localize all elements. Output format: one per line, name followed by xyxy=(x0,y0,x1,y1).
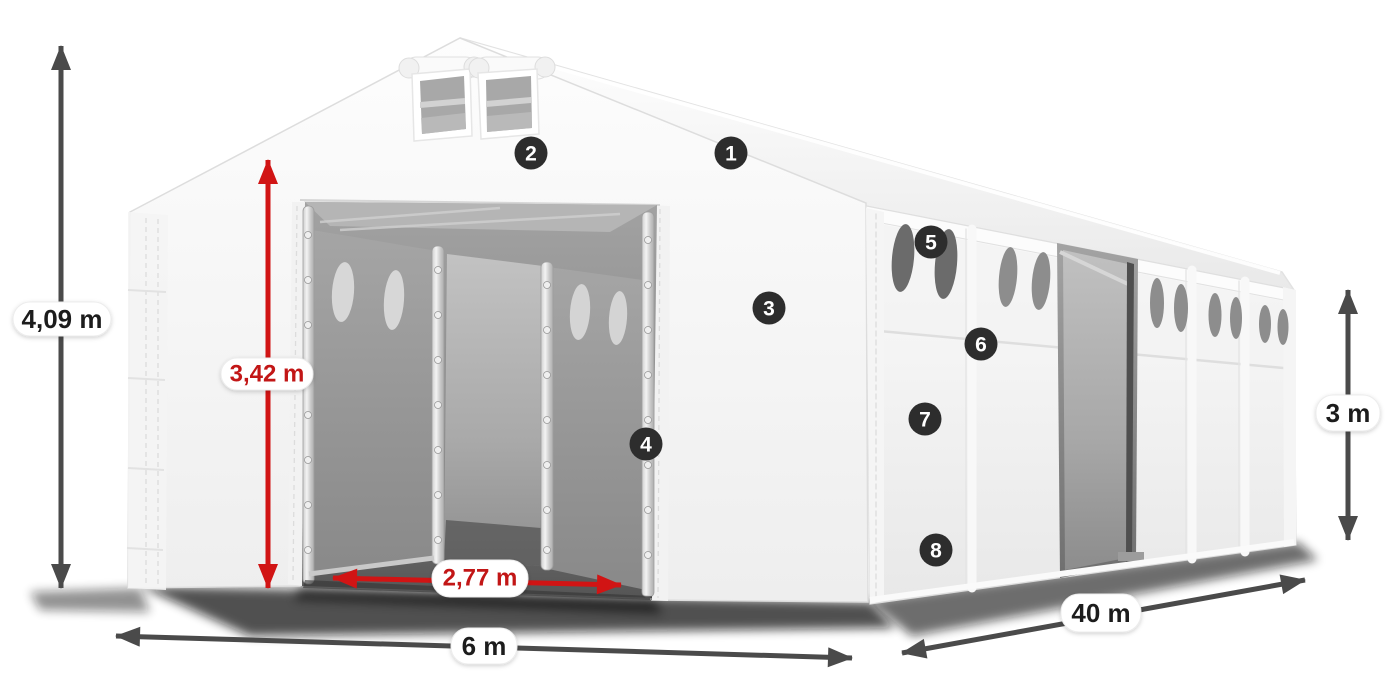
side-height-label: 3 m xyxy=(1316,395,1380,431)
entrance-opening xyxy=(302,202,657,600)
feature-badge-5[interactable]: 5 xyxy=(915,226,948,259)
dimension-side-height: 3 m xyxy=(1316,290,1380,540)
badge-1-number: 1 xyxy=(725,143,737,166)
width-label: 6 m xyxy=(451,628,517,664)
side-window xyxy=(1150,278,1164,328)
side-window xyxy=(1259,305,1271,343)
side-door-base-plate xyxy=(1118,552,1144,561)
feature-badge-1[interactable]: 1 xyxy=(715,137,748,170)
badge-2-number: 2 xyxy=(525,143,537,166)
badge-8-number: 8 xyxy=(930,540,942,563)
side-window xyxy=(1230,297,1242,339)
entrance-height-label: 3,42 m xyxy=(221,358,313,390)
feature-badge-2[interactable]: 2 xyxy=(515,137,548,170)
tent-diagram-canvas: 4,09 m 3,42 m 2,77 m 6 m xyxy=(0,0,1400,700)
feature-badge-8[interactable]: 8 xyxy=(920,534,953,567)
side-window xyxy=(1209,293,1222,337)
total-height-label: 4,09 m xyxy=(13,302,111,336)
side-window xyxy=(1174,284,1188,332)
side-sliding-door-leaf xyxy=(1063,250,1128,570)
badge-7-number: 7 xyxy=(919,409,931,432)
inner-doorway-floor-shadow xyxy=(444,520,541,566)
entrance-width-label: 2,77 m xyxy=(432,560,528,597)
inner-door-right-leaf xyxy=(544,267,650,590)
badge-3-number: 3 xyxy=(763,298,775,321)
side-height-value: 3 m xyxy=(1326,398,1371,428)
tent-diagram: 4,09 m 3,42 m 2,77 m 6 m xyxy=(0,0,1400,700)
badge-4-number: 4 xyxy=(640,434,652,457)
length-value: 40 m xyxy=(1071,598,1130,628)
width-value: 6 m xyxy=(462,631,507,661)
side-window xyxy=(1278,309,1289,345)
tent-illustration xyxy=(127,38,1296,604)
feature-badge-4[interactable]: 4 xyxy=(630,428,663,461)
inner-door-left-leaf xyxy=(308,230,437,576)
badge-6-number: 6 xyxy=(975,334,987,357)
dimension-width: 6 m xyxy=(116,628,852,664)
entrance-width-value: 2,77 m xyxy=(443,565,518,592)
dimension-total-height: 4,09 m xyxy=(13,46,111,588)
badge-5-number: 5 xyxy=(925,232,937,255)
entrance-height-value: 3,42 m xyxy=(230,361,305,388)
total-height-value: 4,09 m xyxy=(22,304,103,334)
feature-badge-3[interactable]: 3 xyxy=(753,292,786,325)
side-door-opening xyxy=(1057,243,1144,578)
length-label: 40 m xyxy=(1061,594,1141,632)
feature-badge-7[interactable]: 7 xyxy=(909,403,942,436)
feature-badge-6[interactable]: 6 xyxy=(965,328,998,361)
inner-doorway-through-view xyxy=(444,254,543,566)
